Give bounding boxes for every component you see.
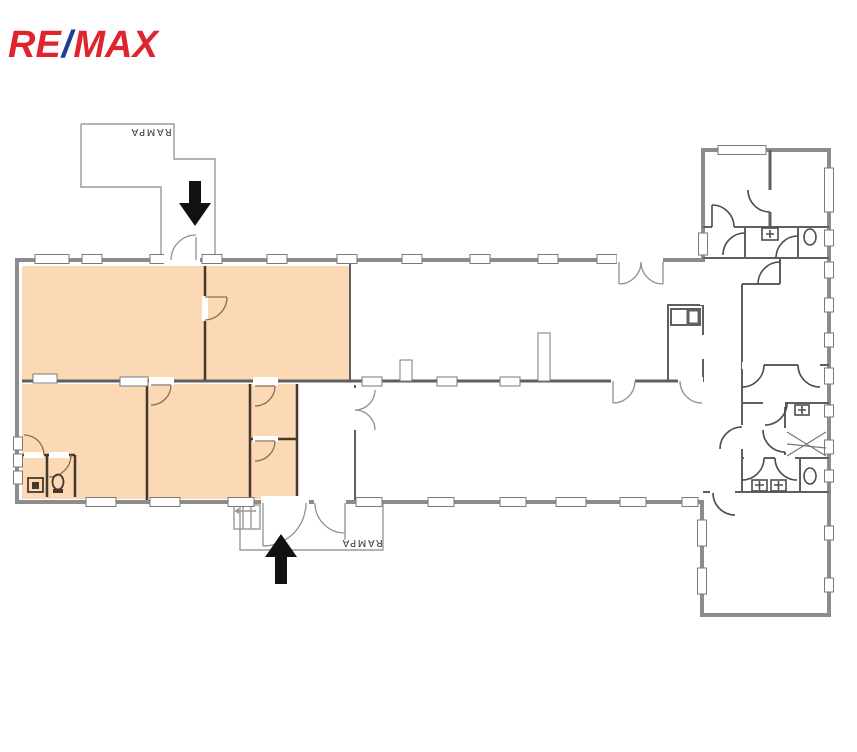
toilet-icon	[804, 229, 816, 245]
toilet-icon	[804, 468, 816, 484]
ramp-label-top: RAMPA	[130, 126, 172, 137]
sink-icon	[771, 480, 786, 491]
shaft-closet	[668, 305, 703, 381]
sink-icon	[795, 405, 809, 415]
highlighted-room	[22, 384, 147, 499]
steps-icon	[234, 505, 260, 529]
highlighted-room	[205, 266, 350, 380]
sink-icon	[762, 228, 778, 240]
floorplan-drawing	[0, 0, 857, 752]
stairs-cross-icon	[787, 432, 826, 456]
ramp-label-bottom: RAMPA	[341, 537, 383, 548]
entrance-arrow-top-icon	[179, 181, 211, 226]
floorplan-canvas: RE/MAX	[0, 0, 857, 752]
sink-icon	[752, 480, 767, 491]
entrance-arrow-bottom-icon	[265, 534, 297, 584]
highlighted-room	[22, 266, 205, 380]
